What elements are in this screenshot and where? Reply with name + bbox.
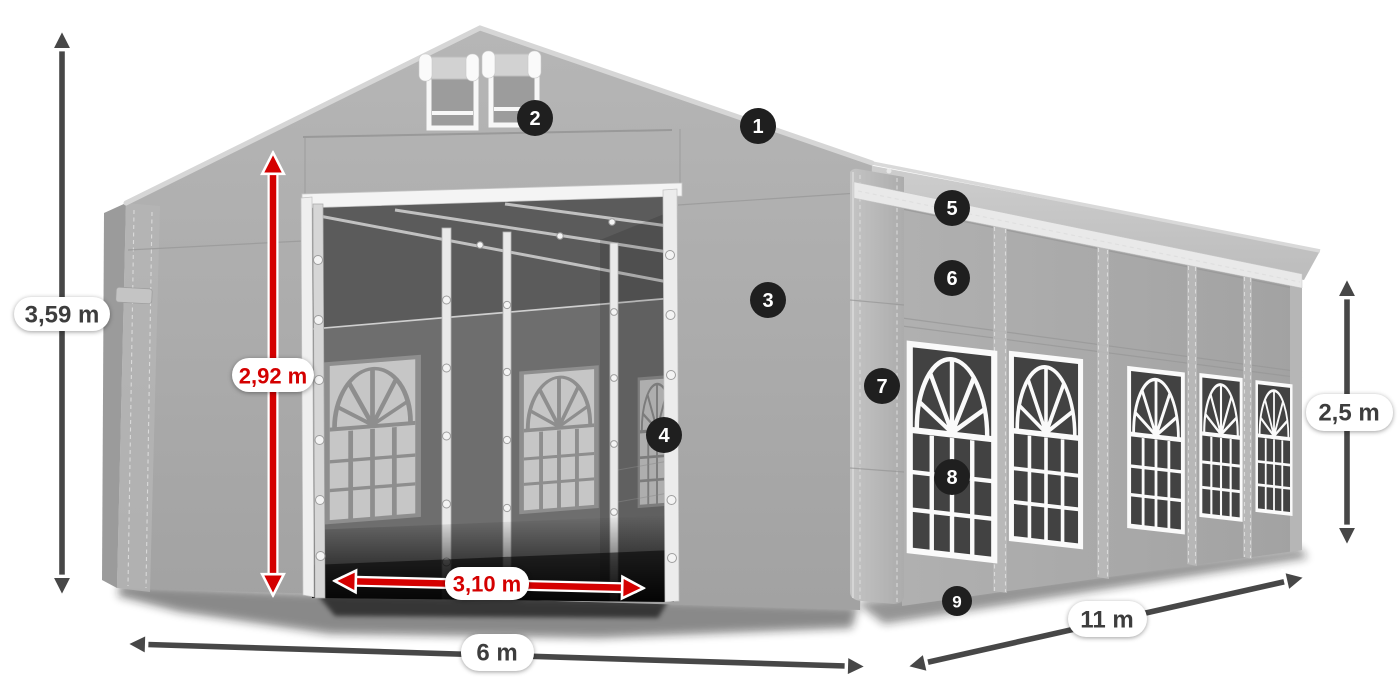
wall-seam-4 [1243, 276, 1252, 559]
corner-pin [887, 169, 892, 174]
door-jamb-left [301, 197, 314, 597]
tent-diagram-stage: 3,59 m 2,92 m 3,10 m 6 m 11 m [0, 0, 1400, 700]
badge-number: 5 [946, 198, 957, 220]
wall-seam-3 [1187, 264, 1197, 566]
badge-number: 3 [762, 290, 773, 312]
hotspot-badge-5[interactable]: 5 [934, 190, 970, 226]
hotspot-badge-8[interactable]: 8 [934, 459, 970, 495]
badge-number: 1 [752, 116, 763, 138]
dimension-value: 2,5 m [1318, 400, 1379, 427]
badge-number: 2 [529, 108, 540, 130]
hotspot-badge-7[interactable]: 7 [864, 368, 900, 404]
interior-window-1 [327, 357, 418, 522]
dimension-value: 11 m [1080, 607, 1133, 634]
badge-number: 6 [946, 268, 957, 290]
hotspot-badge-3[interactable]: 3 [750, 282, 786, 318]
badge-number: 4 [658, 425, 670, 447]
tent-diagram: 3,59 m 2,92 m 3,10 m 6 m 11 m [0, 0, 1400, 700]
dimension-value: 2,92 m [239, 364, 308, 389]
tent-illustration [102, 28, 1320, 610]
side-window-5 [1257, 382, 1292, 514]
dimension-value: 6 m [476, 640, 517, 667]
badge-number: 8 [946, 467, 957, 489]
side-window-4 [1201, 375, 1241, 519]
side-window-2 [1011, 354, 1080, 547]
side-window-3 [1129, 368, 1183, 532]
dimension-value: 3,10 m [453, 572, 522, 597]
hotspot-badge-6[interactable]: 6 [934, 260, 970, 296]
hotspot-badge-1[interactable]: 1 [740, 108, 776, 144]
wall-seam-2 [1097, 246, 1109, 579]
hotspot-badge-9[interactable]: 9 [942, 586, 972, 616]
dimension-front-width: 6 m [131, 634, 862, 671]
badge-number: 9 [952, 593, 961, 612]
dimension-total-height: 3,59 m [14, 34, 110, 592]
dimension-value: 3,59 m [25, 302, 100, 329]
strap-tab [116, 287, 153, 304]
interior-window-2 [522, 367, 597, 512]
gable-vent-left [419, 54, 479, 128]
hotspot-badge-2[interactable]: 2 [517, 100, 553, 136]
badge-number: 7 [876, 376, 887, 398]
dimension-side-height: 2,5 m [1306, 282, 1393, 542]
entrance-interior [305, 190, 680, 605]
side-window-1 [910, 344, 994, 560]
hotspot-badge-4[interactable]: 4 [646, 417, 682, 453]
